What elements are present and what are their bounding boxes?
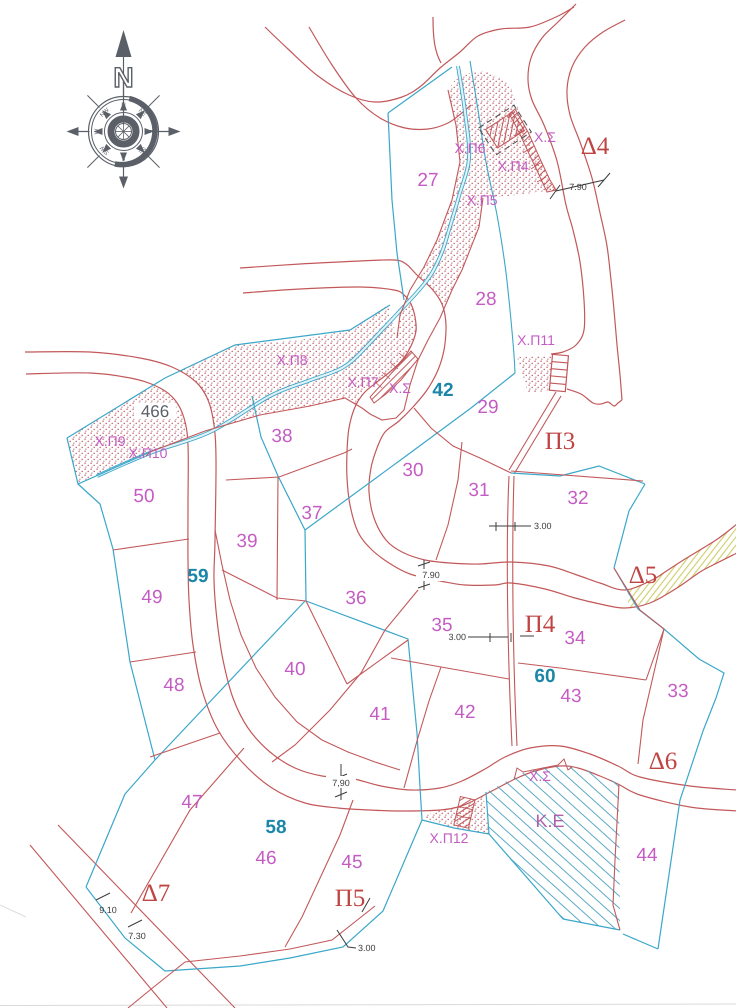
svg-text:44: 44 (636, 845, 658, 866)
svg-text:48: 48 (163, 675, 184, 696)
svg-text:466: 466 (141, 402, 169, 421)
svg-text:60: 60 (534, 666, 555, 687)
svg-text:X.Π11: X.Π11 (517, 332, 555, 348)
svg-text:N: N (121, 102, 125, 109)
svg-text:E: E (147, 129, 154, 133)
svg-text:36: 36 (345, 588, 366, 609)
svg-text:59: 59 (187, 566, 208, 587)
svg-text:41: 41 (369, 704, 390, 725)
svg-text:3.00: 3.00 (534, 521, 552, 531)
svg-text:K.E: K.E (535, 811, 564, 831)
svg-text:46: 46 (255, 848, 276, 869)
svg-text:43: 43 (560, 686, 581, 707)
svg-text:S: S (121, 155, 125, 162)
svg-text:X.Σ: X.Σ (534, 129, 556, 145)
svg-text:47: 47 (181, 792, 202, 813)
svg-text:45: 45 (341, 852, 362, 873)
svg-text:40: 40 (284, 659, 305, 680)
svg-text:X.Π7: X.Π7 (347, 374, 378, 390)
svg-text:29: 29 (477, 397, 498, 418)
svg-text:49: 49 (141, 587, 162, 608)
svg-text:NW: NW (99, 107, 111, 119)
svg-text:Δ6: Δ6 (649, 748, 678, 775)
svg-text:9.10: 9.10 (99, 905, 117, 915)
svg-text:X.Π4: X.Π4 (497, 158, 528, 174)
svg-text:3.00: 3.00 (448, 632, 466, 642)
svg-text:X.Π8: X.Π8 (276, 352, 307, 368)
svg-text:X.Π10: X.Π10 (129, 445, 168, 461)
svg-text:X.Π12: X.Π12 (430, 830, 469, 846)
svg-text:39: 39 (236, 531, 257, 552)
svg-text:3.00: 3.00 (358, 943, 376, 953)
svg-text:58: 58 (265, 817, 286, 838)
svg-text:30: 30 (402, 460, 423, 481)
svg-text:7.90: 7.90 (569, 182, 587, 192)
svg-text:31: 31 (468, 480, 489, 501)
svg-text:27: 27 (417, 170, 438, 191)
svg-text:Π4: Π4 (525, 611, 556, 638)
svg-text:42: 42 (432, 380, 453, 401)
svg-text:37: 37 (301, 503, 322, 524)
svg-text:7,90: 7,90 (332, 778, 350, 788)
svg-text:Π5: Π5 (335, 885, 366, 912)
svg-text:W: W (94, 128, 101, 134)
svg-text:50: 50 (133, 486, 154, 507)
svg-text:X.Π5: X.Π5 (466, 192, 497, 208)
svg-text:X.Π9: X.Π9 (94, 433, 125, 449)
svg-text:7.30: 7.30 (128, 931, 146, 941)
svg-text:X.Σ: X.Σ (529, 768, 551, 784)
svg-text:Δ5: Δ5 (629, 562, 658, 589)
svg-text:33: 33 (667, 681, 688, 702)
svg-text:X.Π6: X.Π6 (454, 140, 485, 156)
svg-text:Π3: Π3 (545, 428, 576, 455)
svg-text:7.90: 7.90 (422, 570, 440, 580)
svg-text:28: 28 (475, 289, 496, 310)
svg-text:42: 42 (454, 702, 475, 723)
svg-text:34: 34 (564, 628, 586, 649)
svg-text:Δ4: Δ4 (581, 133, 610, 160)
svg-text:X.Σ: X.Σ (389, 380, 411, 396)
svg-text:32: 32 (567, 488, 588, 509)
svg-text:38: 38 (271, 426, 292, 447)
svg-text:Δ7: Δ7 (142, 880, 171, 907)
